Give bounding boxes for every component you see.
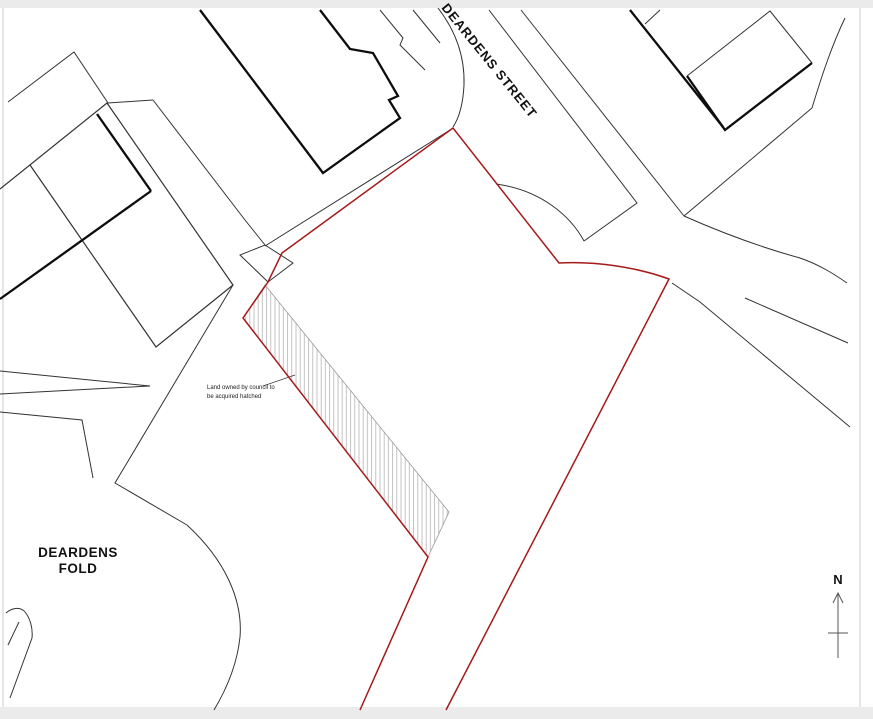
fold-name-label-line2: FOLD xyxy=(59,561,98,576)
deardens-street-east-edge xyxy=(489,10,637,241)
alley-line-west xyxy=(380,10,425,70)
fold-corner-wedge-lower xyxy=(0,412,93,478)
site-plan-map: DEARDENS STREET DEARDENS FOLD Land owned… xyxy=(0,0,873,719)
council-land-annotation-line2: be acquired hatched xyxy=(207,394,261,400)
boundary-wall-west-b xyxy=(0,191,151,299)
boundary-wall-ne xyxy=(630,10,723,127)
page-edge-bottom xyxy=(0,707,873,719)
fold-street-arc xyxy=(187,525,240,710)
council-land-hatch-area xyxy=(243,285,449,557)
hatch-layer xyxy=(243,285,449,557)
parcel-wedge-nw xyxy=(8,52,153,103)
building-ne-outline-thin xyxy=(687,11,812,76)
site-boundary-layer xyxy=(243,128,669,710)
labels-layer: DEARDENS STREET DEARDENS FOLD Land owned… xyxy=(38,0,843,587)
council-land-annotation-line1: Land owned by council to xyxy=(207,385,275,391)
boundary-wall-west-a xyxy=(97,114,151,191)
site-boundary-red-line xyxy=(243,128,669,710)
building-ne-spur xyxy=(645,10,660,24)
corner-curve-sw-inner xyxy=(8,622,19,645)
fold-corner-wedge-upper xyxy=(0,371,150,394)
street-corner-curve xyxy=(496,184,584,241)
north-arrow xyxy=(828,593,848,658)
page-frame xyxy=(0,0,873,719)
parcel-lines-layer xyxy=(0,8,850,710)
page-edge-top xyxy=(0,0,873,8)
fold-name-label-line1: DEARDENS xyxy=(38,545,118,560)
building-main-outline xyxy=(200,10,400,173)
parcel-block-west xyxy=(0,103,233,347)
building-lines-layer xyxy=(0,10,812,299)
alley-line-east xyxy=(413,10,440,43)
road-north-edge xyxy=(521,10,684,216)
road-curve-east xyxy=(684,216,847,283)
road-south-edge xyxy=(745,298,848,343)
building-ne-outline-thick xyxy=(687,63,812,130)
site-plan-page: DEARDENS STREET DEARDENS FOLD Land owned… xyxy=(0,0,873,719)
corner-curve-sw xyxy=(6,608,32,698)
road-ne-edge xyxy=(684,18,845,216)
north-label: N xyxy=(833,572,842,587)
fold-street-west-edge xyxy=(115,285,233,525)
street-edge-nw xyxy=(153,100,265,245)
street-name-label: DEARDENS STREET xyxy=(439,0,541,120)
